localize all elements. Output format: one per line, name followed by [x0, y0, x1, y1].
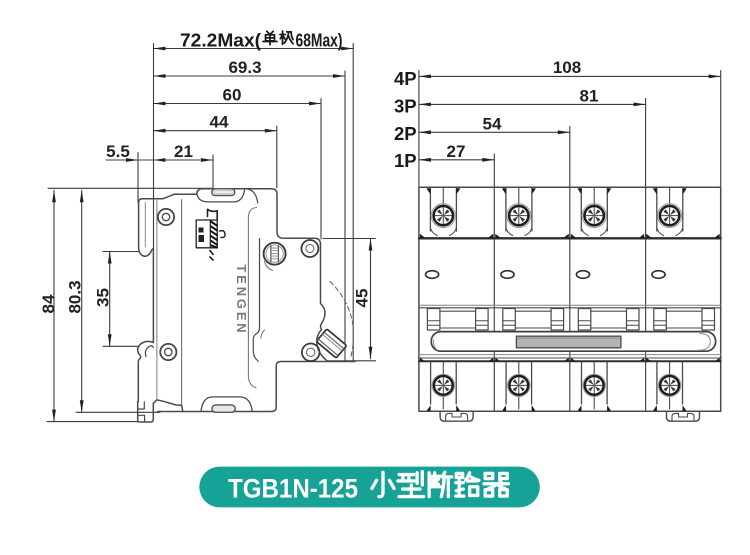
svg-text:3P: 3P	[394, 96, 417, 117]
svg-text:108: 108	[553, 58, 581, 77]
svg-text:81: 81	[580, 87, 599, 106]
svg-text:21: 21	[174, 142, 193, 161]
svg-text:4P: 4P	[394, 68, 417, 89]
svg-text:44: 44	[210, 113, 229, 132]
svg-text:68Max): 68Max)	[296, 29, 343, 50]
svg-text:TGB1N-125: TGB1N-125	[228, 473, 358, 503]
svg-text:TENGEN: TENGEN	[234, 265, 249, 336]
svg-text:5.5: 5.5	[106, 142, 130, 161]
svg-text:80.3: 80.3	[65, 280, 84, 313]
svg-text:2P: 2P	[394, 123, 417, 144]
svg-text:45: 45	[352, 289, 371, 308]
svg-text:84: 84	[39, 294, 58, 313]
svg-text:1P: 1P	[394, 150, 417, 171]
svg-text:35: 35	[94, 288, 113, 307]
svg-text:60: 60	[223, 86, 242, 105]
svg-text:72.2Max(: 72.2Max(	[180, 29, 262, 50]
svg-text:27: 27	[447, 142, 466, 161]
svg-text:69.3: 69.3	[228, 58, 261, 77]
svg-text:54: 54	[483, 115, 502, 134]
